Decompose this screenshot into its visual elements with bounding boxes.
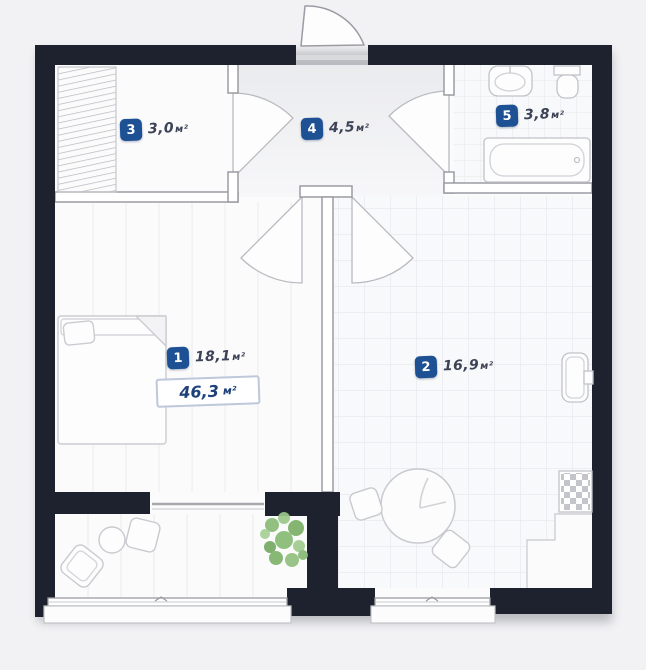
room-1-area-value: 18,1 bbox=[195, 348, 232, 365]
total-area-value: 46,3 bbox=[179, 382, 219, 402]
total-area-unit: м² bbox=[223, 384, 237, 397]
room-2-area-value: 16,9 bbox=[443, 357, 480, 374]
room-3-area-value: 3,0 bbox=[148, 120, 175, 137]
room-5-area-unit: м² bbox=[551, 110, 565, 121]
room-5-label: 5 3,8м² bbox=[496, 103, 565, 127]
floor-plan-page: 3 3,0м² 4 4,5м² 5 3,8м² 1 18,1м² 2 16,9м… bbox=[0, 0, 646, 670]
room-4-area-unit: м² bbox=[356, 123, 370, 134]
room-1-badge: 1 bbox=[167, 347, 190, 370]
room-4-area-value: 4,5 bbox=[329, 119, 356, 136]
room-1-area: 18,1м² bbox=[195, 348, 246, 366]
room-5-badge: 5 bbox=[496, 104, 519, 127]
total-area-box: 46,3 м² bbox=[156, 375, 261, 408]
room-3-badge: 3 bbox=[120, 118, 143, 141]
room-2-label: 2 16,9м² bbox=[415, 354, 494, 379]
room-4-area: 4,5м² bbox=[329, 119, 370, 136]
room-4-label: 4 4,5м² bbox=[301, 116, 370, 140]
room-5-area-value: 3,8 bbox=[524, 106, 551, 123]
room-4-badge: 4 bbox=[301, 117, 324, 140]
room-2-area-unit: м² bbox=[480, 361, 494, 372]
room-3-area-unit: м² bbox=[175, 124, 189, 135]
room-labels: 3 3,0м² 4 4,5м² 5 3,8м² 1 18,1м² 2 16,9м… bbox=[0, 0, 646, 670]
room-5-area: 3,8м² bbox=[524, 106, 565, 123]
room-2-area: 16,9м² bbox=[443, 357, 494, 375]
room-2-badge: 2 bbox=[415, 356, 438, 379]
room-3-label: 3 3,0м² bbox=[120, 117, 189, 141]
room-3-area: 3,0м² bbox=[148, 120, 189, 137]
room-1-area-unit: м² bbox=[232, 352, 246, 363]
room-1-label: 1 18,1м² bbox=[167, 345, 246, 370]
